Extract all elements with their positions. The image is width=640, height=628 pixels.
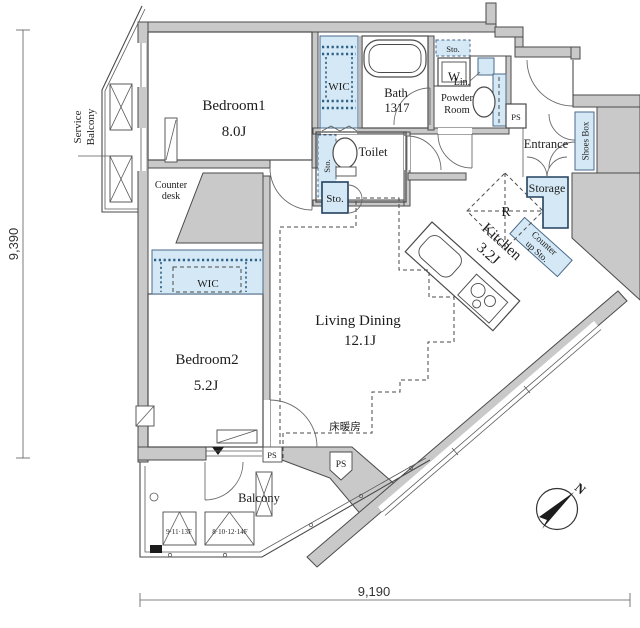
entrance-label: Entrance	[524, 137, 569, 151]
toilet-label: Toilet	[359, 145, 389, 159]
toilet-sto-label: Sto.	[322, 159, 332, 172]
floor-heating-label: 床暖房	[329, 420, 361, 433]
wic1-label: WIC	[328, 81, 349, 93]
dimension-vertical: 9,390	[6, 30, 30, 458]
floor-plan-page: Bedroom1 8.0J Bedroom2 5.2J Living Dinin…	[0, 0, 640, 628]
ps-label-pentagon: PS	[336, 460, 347, 470]
linen-box	[478, 58, 494, 75]
toilet-bowl	[333, 138, 357, 168]
counter-desk-mass	[176, 173, 263, 243]
toilet-sto-label-group: Sto.	[322, 159, 332, 172]
bath-size: 1317	[385, 101, 410, 115]
bedroom2-label: Bedroom2	[175, 352, 238, 368]
hall-sto-label: Sto.	[326, 193, 344, 205]
ps-label-top: PS	[511, 112, 521, 122]
diagonal-window	[378, 321, 602, 517]
minor-room-labels: Bath 1317 Toilet Entrance Balcony	[238, 86, 568, 505]
bath-label: Bath	[384, 86, 408, 100]
drain-circle	[150, 493, 158, 501]
basin	[473, 87, 495, 117]
counter-desk-label-1: Counter	[155, 180, 188, 191]
compass-north-label: N	[572, 480, 589, 498]
toilet-tank	[336, 167, 356, 176]
dimension-vertical-label: 9,390	[6, 228, 21, 261]
bedroom1-area: 8.0J	[222, 124, 247, 140]
sto-over-washer-label: Sto.	[446, 44, 459, 54]
dimension-horizontal-label: 9,190	[358, 584, 391, 599]
refrigerator-label: R	[501, 205, 511, 220]
dimension-horizontal: 9,190	[140, 584, 630, 607]
drain-box	[150, 545, 162, 553]
shoes-box-label-group: Shoes Box	[581, 121, 591, 160]
shoes-box-label: Shoes Box	[581, 121, 591, 160]
living-dining-area: 12.1J	[344, 333, 376, 349]
bedroom1-label: Bedroom1	[202, 98, 265, 114]
ps-label-bottom: PS	[267, 450, 277, 460]
powder-label-1: Powder	[441, 93, 474, 104]
bedroom2-room	[148, 294, 263, 447]
bedroom2-area: 5.2J	[194, 378, 219, 394]
hatch-upper-label: 9·11·13F	[166, 528, 192, 536]
balcony-label: Balcony	[238, 491, 280, 505]
service-balcony-label-group: Service Balcony	[72, 108, 97, 145]
compass-needle	[539, 492, 574, 529]
powder-label-2: Room	[444, 105, 470, 116]
compass: N	[537, 480, 590, 530]
room-labels: Bedroom1 8.0J Bedroom2 5.2J Living Dinin…	[175, 98, 401, 394]
storage-label: Storage	[529, 181, 566, 195]
hatch-lower-label: 8·10·12·14F	[212, 528, 247, 536]
floor-plan: Bedroom1 8.0J Bedroom2 5.2J Living Dinin…	[0, 0, 640, 628]
living-dining-label: Living Dining	[315, 313, 401, 329]
wic2-label: WIC	[197, 278, 218, 290]
linen-label: Lin.	[454, 77, 470, 88]
service-balcony-label-2: Balcony	[85, 108, 97, 145]
service-balcony-label-1: Service	[72, 110, 84, 143]
counter-desk-label-2: desk	[162, 191, 180, 202]
